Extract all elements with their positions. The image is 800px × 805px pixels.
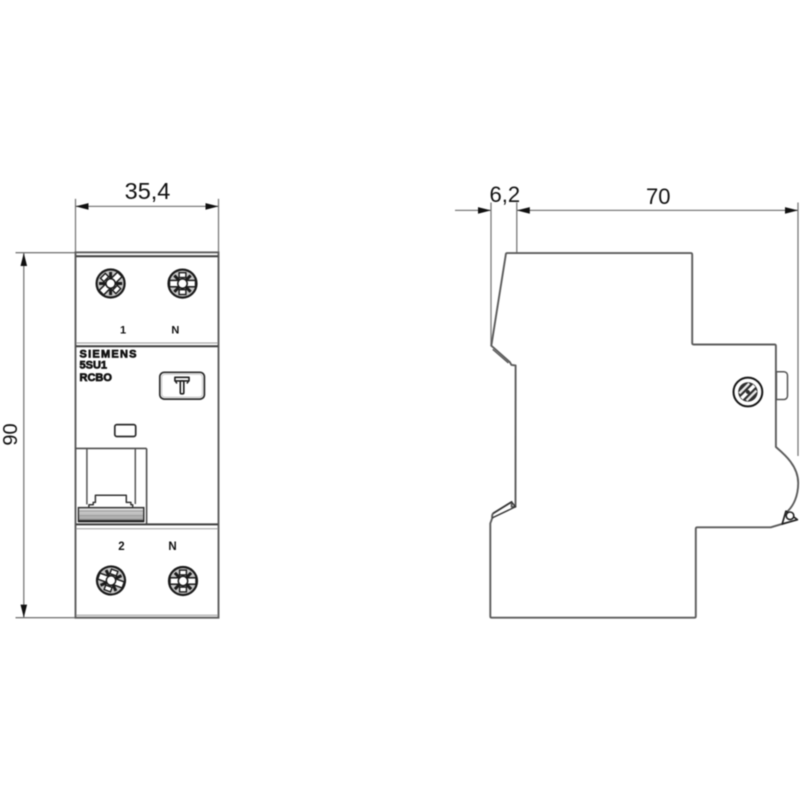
svg-text:N: N xyxy=(168,541,176,553)
svg-text:35,4: 35,4 xyxy=(125,178,171,204)
svg-text:RCBO: RCBO xyxy=(80,372,113,384)
svg-text:N: N xyxy=(171,325,179,337)
svg-text:90: 90 xyxy=(0,423,22,445)
svg-text:SIEMENS: SIEMENS xyxy=(80,348,138,360)
svg-text:6,2: 6,2 xyxy=(490,182,521,207)
svg-text:5SU1: 5SU1 xyxy=(80,360,108,372)
svg-text:2: 2 xyxy=(118,541,124,553)
svg-text:70: 70 xyxy=(646,184,670,209)
svg-text:1: 1 xyxy=(120,325,126,337)
